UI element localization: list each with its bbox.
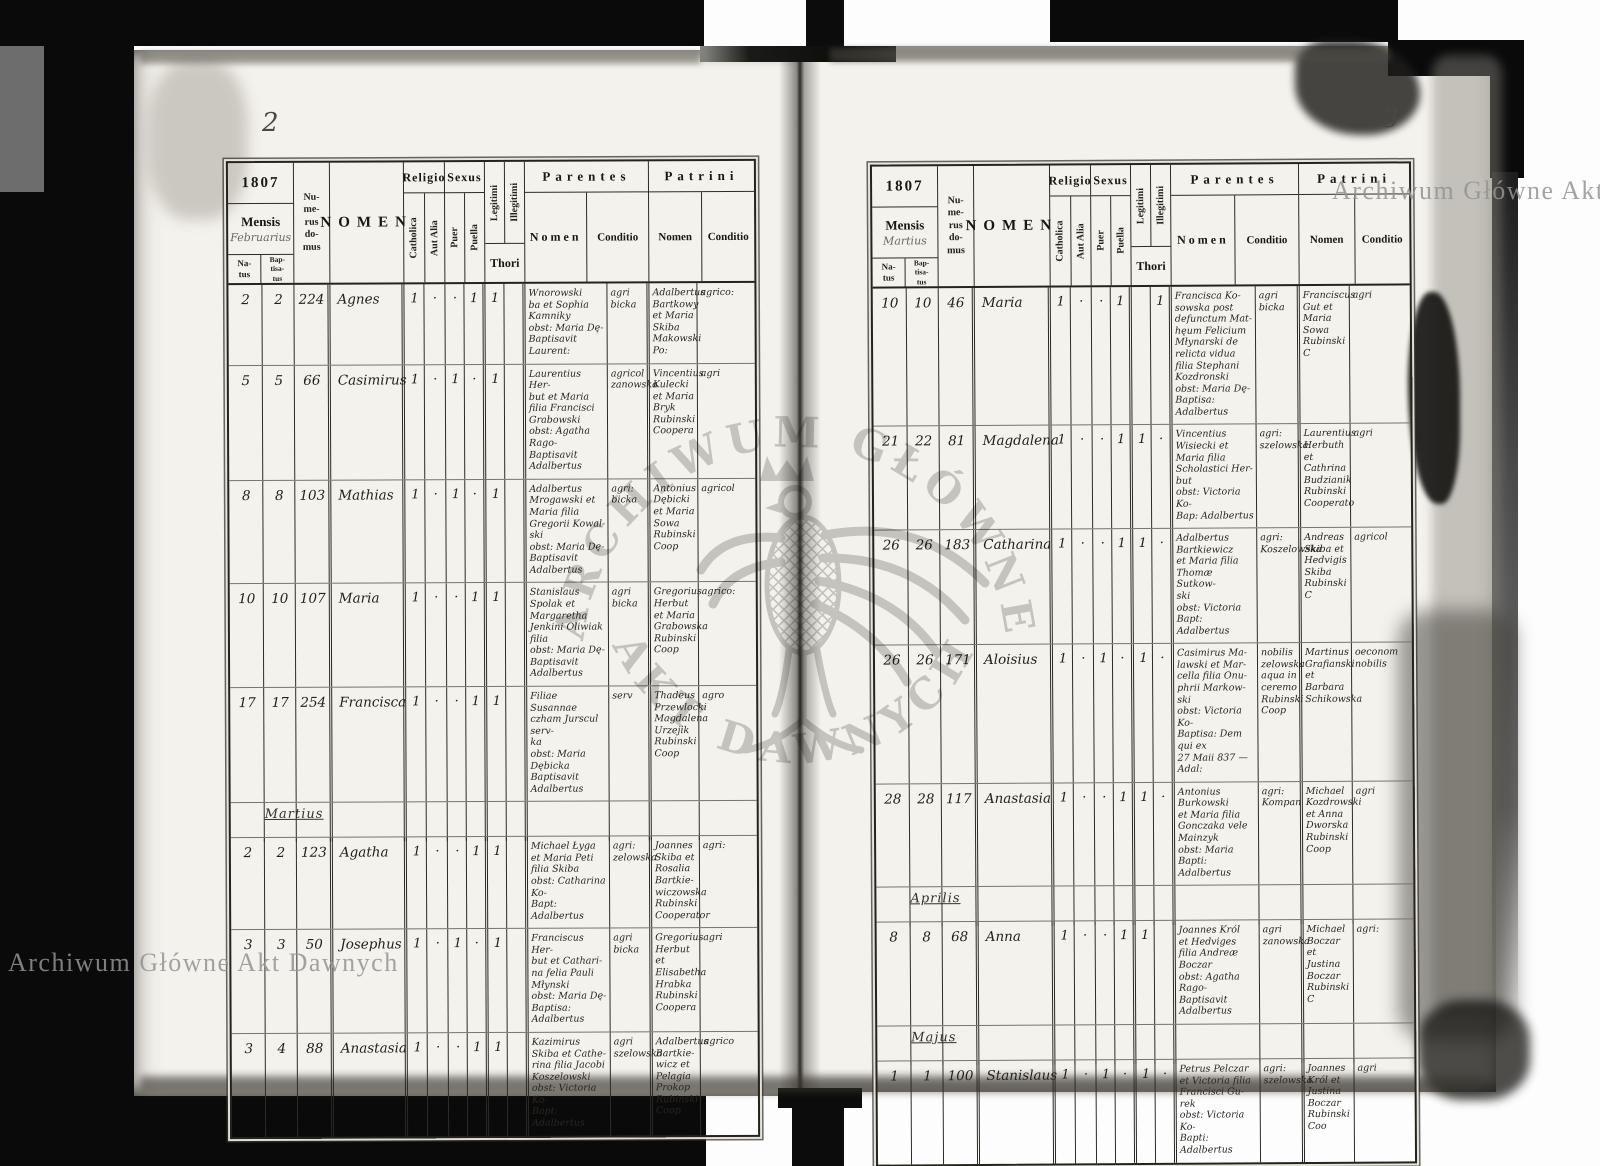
catholica-mark: 1 xyxy=(407,838,427,929)
page-number-left: 2 xyxy=(262,108,279,138)
aut-alia-mark: · xyxy=(428,1033,449,1136)
catholica-mark: 1 xyxy=(1055,922,1076,1025)
godparents-names: Andreas Skiba et Hedvigis Skiba Rubinski… xyxy=(1301,528,1352,643)
parents-names: Kazimirus Skiba et Cathe- rina filia Jac… xyxy=(529,1032,611,1135)
child-name: Magdalena xyxy=(976,426,1053,529)
register-row: 28 28 117 Anastasia 1 · · 1 1 · Antonius… xyxy=(876,780,1414,887)
house-number-value: 171 xyxy=(941,645,978,783)
puer-mark: · xyxy=(1095,783,1115,886)
year-label: 1807 xyxy=(872,166,937,207)
baptisatus-value: 26 xyxy=(908,530,941,644)
baptisatus-value: 22 xyxy=(908,427,941,530)
child-name: Aloisius xyxy=(977,645,1054,783)
puella-label: Puella xyxy=(1115,227,1126,254)
godparents-names: Michael Boczar et Justina Boczar Rubinsk… xyxy=(1304,920,1355,1023)
godparents-condition: agrico xyxy=(701,1032,758,1135)
header-date-block: 1807 Mensis Martius Na- tus Bap- tisa- t… xyxy=(872,166,939,287)
table-body-right: 10 10 46 Maria 1 · · 1 1 Francisca Ko- s… xyxy=(873,285,1415,1164)
table-body-left: 2 2 224 Agnes 1 · · 1 1 Wnorowski ba et … xyxy=(228,283,758,1137)
puer-mark: · xyxy=(1093,529,1113,643)
puer-label: Puer xyxy=(1095,231,1106,252)
legitimi-mark: 1 xyxy=(1136,921,1156,1024)
parentes-header: Parentes Nomen Conditio xyxy=(525,161,650,282)
natus-value: 10 xyxy=(230,584,264,687)
natus-value: 3 xyxy=(231,930,265,1033)
child-name: Catharina xyxy=(976,530,1053,645)
patrini-header: Patrini Nomen Conditio xyxy=(1299,163,1410,284)
legitimi-mark: 1 xyxy=(487,583,506,686)
catholica-mark: 1 xyxy=(406,584,426,687)
illegitimi-mark xyxy=(505,364,526,478)
godparents-names: Gregorius Herbut et Elisabetha Hrabka Ru… xyxy=(652,928,700,1031)
thori-label: Thori xyxy=(1136,258,1165,273)
page-number-right: 3 xyxy=(1382,104,1399,134)
year-label: 1807 xyxy=(228,163,293,204)
illegitimi-mark: · xyxy=(1152,529,1174,643)
parents-names: Petrus Pelczar et Victoria filia Francis… xyxy=(1176,1059,1261,1162)
aut-alia-mark: · xyxy=(1072,426,1094,529)
house-number-value: 183 xyxy=(940,530,977,644)
parents-condition: serv xyxy=(609,686,651,800)
godparents-names: Gregorius Herbut et Maria Grabowska Rubi… xyxy=(651,583,699,686)
natus-label: Na- tus xyxy=(873,258,906,286)
baptisatus-value: 1 xyxy=(911,1061,944,1164)
month-label: Martius xyxy=(265,807,324,822)
nomen-label: NOMEN xyxy=(966,217,1059,235)
register-row: 8 8 103 Mathias 1 · 1 · 1 Adalbertus Mro… xyxy=(229,478,755,584)
patrini-header: Patrini Nomen Conditio xyxy=(649,161,755,282)
puer-mark: · xyxy=(449,1033,468,1136)
thori-header: Legitimi Illegitimi Thori xyxy=(485,162,526,282)
parents-condition: agri zanowska xyxy=(1260,920,1305,1023)
parents-names: Wnorowski ba et Sophia Kamniky obst: Mar… xyxy=(525,284,607,364)
illegitimi-mark xyxy=(505,480,526,583)
parents-condition: agri bicka xyxy=(607,283,649,363)
godparents-condition: agri: xyxy=(1354,920,1415,1023)
house-number-value: 123 xyxy=(297,838,333,929)
aut-alia-mark: · xyxy=(426,687,447,801)
legitimi-mark: 1 xyxy=(1135,783,1155,886)
catholica-mark: 1 xyxy=(1051,288,1072,425)
register-table-right: 1807 Mensis Martius Na- tus Bap- tisa- t… xyxy=(870,161,1417,1166)
month-section-row: Aprilis xyxy=(876,884,1413,922)
parentes-label: Parentes xyxy=(1171,164,1298,196)
sexus-label: Sexus xyxy=(1091,165,1130,196)
aut-alia-label: Aut Alia xyxy=(1075,223,1086,259)
child-name: Anastasia xyxy=(334,1033,408,1136)
book-clasp-bottom xyxy=(792,1094,844,1166)
legitimi-mark: 1 xyxy=(1133,529,1153,643)
illegitimi-mark xyxy=(507,929,528,1032)
register-table-left: 1807 Mensis Februarius Na- tus Bap- tisa… xyxy=(226,159,760,1139)
natus-value: 21 xyxy=(874,427,909,530)
parents-condition: agri bicka xyxy=(1256,286,1301,424)
register-row: 3 4 88 Anastasia 1 · · 1 1 Kazimirus Ski… xyxy=(232,1031,758,1137)
natus-baptisatus-row: Na- tus Bap- tisa- tus xyxy=(228,255,293,283)
natus-value: 8 xyxy=(877,923,912,1026)
register-row: 10 10 107 Maria 1 · · 1 1 Stanislaus Spo… xyxy=(230,581,756,687)
puer-mark: · xyxy=(1092,287,1112,424)
register-row: 2 2 123 Agatha 1 · · 1 1 Michael Łyga et… xyxy=(231,835,757,929)
patrini-label: Patrini xyxy=(649,161,754,192)
godparents-condition: agri xyxy=(698,363,755,477)
child-name: Mathias xyxy=(331,480,405,583)
godparents-condition: agri xyxy=(1350,285,1411,423)
child-name: Anastasia xyxy=(978,783,1055,886)
child-name: Francisca xyxy=(332,687,406,802)
godparents-condition: agrico: xyxy=(699,582,756,685)
baptisatus-value: 3 xyxy=(265,930,297,1033)
catholica-mark: 1 xyxy=(1052,530,1073,644)
puella-mark: 1 xyxy=(1112,426,1134,529)
illegitimi-label: Illegitimi xyxy=(1155,186,1166,225)
illegitimi-mark xyxy=(506,583,527,686)
child-name: Casimirus xyxy=(331,365,405,480)
parents-names: Laurentius Her- but et Maria filia Franc… xyxy=(526,364,608,479)
house-number-value: 68 xyxy=(943,922,980,1025)
puer-label: Puer xyxy=(449,227,460,248)
legitimi-label: Legitimi xyxy=(489,184,500,220)
natus-label: Na- tus xyxy=(228,255,261,283)
child-name: Stanislaus xyxy=(979,1060,1056,1163)
aut-alia-mark: · xyxy=(426,584,447,687)
godparents-names: Franciscus Gut et Maria Sowa Rubinski C xyxy=(1300,286,1351,424)
numerus-domus-label: Nu- me- rus do- mus xyxy=(947,195,965,258)
baptisatus-value: 10 xyxy=(264,584,296,687)
puer-mark: · xyxy=(448,837,467,928)
sexus-header: Sexus Puer Puella xyxy=(1091,165,1132,285)
puella-mark: · xyxy=(465,365,486,479)
book-clasp-top xyxy=(806,0,844,52)
aut-alia-mark: · xyxy=(1074,783,1096,886)
month-section-row: Martius xyxy=(231,800,757,837)
religio-header: Religio Catholica Aut Alia xyxy=(404,162,446,282)
parentes-conditio-label: Conditio xyxy=(587,192,648,281)
catholica-mark: 1 xyxy=(408,1033,428,1136)
aut-alia-mark: · xyxy=(1075,1060,1097,1163)
parents-condition: agri: Koszelowska xyxy=(1257,528,1302,642)
godparents-condition: agri xyxy=(1351,424,1412,527)
baptisatus-value: 26 xyxy=(909,646,942,784)
baptisatus-value: 4 xyxy=(266,1034,298,1137)
puella-mark: 1 xyxy=(466,583,487,686)
aut-alia-mark: · xyxy=(427,929,448,1032)
godparents-condition: agri xyxy=(1353,781,1414,884)
parents-names: Adalbertus Bartkiewicz et Maria filia Th… xyxy=(1173,528,1258,643)
child-name: Josephus xyxy=(333,930,407,1033)
puella-mark: 1 xyxy=(1115,921,1137,1024)
mensis-label: Mensis xyxy=(241,214,280,230)
legitimi-mark: 1 xyxy=(1136,1060,1156,1163)
parents-condition: agri bicka xyxy=(610,929,652,1032)
thori-header: Legitimi Illegitimi Thori xyxy=(1131,165,1172,285)
house-number-value: 46 xyxy=(939,288,976,426)
illegitimi-mark xyxy=(508,1033,529,1136)
legitimi-mark: 1 xyxy=(489,1033,508,1136)
house-number-value: 117 xyxy=(942,784,979,887)
godparents-names: Thadeus Przewlocki Magdalena Urzejik Rub… xyxy=(651,686,699,800)
aut-alia-mark: · xyxy=(1073,645,1095,782)
illegitimi-mark: · xyxy=(1154,782,1176,885)
aut-alia-mark: · xyxy=(1072,529,1094,643)
child-name: Agnes xyxy=(330,285,404,365)
catholica-mark: 1 xyxy=(1054,783,1075,886)
puella-mark: · xyxy=(1115,1060,1137,1163)
puer-mark: · xyxy=(447,687,466,801)
mensis-label: Mensis xyxy=(885,217,924,233)
aut-alia-mark: · xyxy=(1071,287,1093,424)
natus-value: 26 xyxy=(875,646,910,784)
godparents-condition: agri xyxy=(700,928,757,1031)
house-number-value: 100 xyxy=(943,1061,980,1164)
illegitimi-label: Illegitimi xyxy=(509,183,520,222)
parents-condition: agri bicka xyxy=(609,583,651,686)
religio-label: Religio xyxy=(404,162,444,193)
parents-names: Michael Łyga et Maria Peti filia Skiba o… xyxy=(528,837,610,928)
baptisatus-value: 5 xyxy=(263,365,295,479)
parents-names: Filiae Susannae czham Jurscul serv- ka o… xyxy=(527,687,609,802)
illegitimi-mark xyxy=(506,687,527,801)
parents-names: Francisca Ko- sowska post defunctum Mat-… xyxy=(1172,286,1257,424)
aut-alia-mark: · xyxy=(427,837,448,928)
parents-names: Casimirus Ma- lawski et Mar- cella filia… xyxy=(1174,644,1259,782)
table-header-left: 1807 Mensis Februarius Na- tus Bap- tisa… xyxy=(228,161,755,285)
baptisatus-value: 2 xyxy=(265,838,297,929)
natus-value: 28 xyxy=(876,784,911,887)
parents-names: Franciscus Her- but et Cathari- na felia… xyxy=(528,929,610,1032)
sexus-label: Sexus xyxy=(445,162,484,193)
puer-mark: · xyxy=(1096,921,1116,1024)
godparents-condition: agrico: xyxy=(697,283,754,363)
baptisatus-value: 17 xyxy=(264,688,296,802)
table-header-right: 1807 Mensis Martius Na- tus Bap- tisa- t… xyxy=(872,163,1410,288)
register-row: 3 3 50 Josephus 1 · 1 · 1 Franciscus Her… xyxy=(231,927,757,1033)
puer-mark: 1 xyxy=(446,365,465,479)
legitimi-mark: 1 xyxy=(487,687,506,801)
child-name: Agatha xyxy=(333,838,407,929)
puella-label: Puella xyxy=(469,224,480,251)
patrini-conditio-label: Conditio xyxy=(1355,194,1410,283)
child-name: Maria xyxy=(975,288,1052,426)
house-number-value: 81 xyxy=(940,427,977,530)
natus-value: 1 xyxy=(877,1061,912,1164)
parentes-label: Parentes xyxy=(525,161,648,193)
child-name: Anna xyxy=(979,922,1056,1025)
godparents-condition: agro xyxy=(699,686,756,800)
nomen-header: NOMEN xyxy=(974,166,1051,287)
nomen-label: NOMEN xyxy=(320,214,413,231)
house-number-value: 50 xyxy=(297,930,333,1033)
godparents-names: Michael Kozdrowski et Anna Dworska Rubin… xyxy=(1303,781,1354,884)
register-row: 21 22 81 Magdalena 1 · · 1 1 · Vincentiu… xyxy=(874,423,1412,530)
aut-alia-label: Aut Alia xyxy=(429,220,440,256)
puer-mark: · xyxy=(445,284,464,364)
house-number-value: 88 xyxy=(298,1034,334,1137)
catholica-mark: 1 xyxy=(1053,645,1074,782)
legitimi-label: Legitimi xyxy=(1135,187,1146,223)
legitimi-mark: 1 xyxy=(1134,644,1154,781)
legitimi-mark xyxy=(1132,287,1152,424)
baptisatus-value: 8 xyxy=(911,923,944,1026)
patrini-nomen-label: Nomen xyxy=(1299,195,1355,284)
baptisatus-label: Bap- tisa- tus xyxy=(906,258,938,286)
child-name: Maria xyxy=(332,584,406,687)
godparents-names: Vincentius Kulecki et Maria Bryk Rubinsk… xyxy=(650,364,698,478)
natus-value: 17 xyxy=(230,688,264,802)
parents-names: Joannes Król et Hedviges filia Andreæ Bo… xyxy=(1176,921,1261,1024)
clasp-top-band xyxy=(700,46,896,62)
register-row: 26 26 171 Aloisius 1 · 1 · 1 · Casimirus… xyxy=(875,642,1413,784)
patrini-nomen-label: Nomen xyxy=(649,192,702,281)
scanned-register-photo: 2 3 1807 Mensis Februarius Na- tus Bap- … xyxy=(0,0,1600,1166)
month-label: Majus xyxy=(911,1030,956,1045)
natus-value: 10 xyxy=(873,289,908,427)
parents-names: Adalbertus Mrogawski et Maria filia Greg… xyxy=(526,479,608,582)
legitimi-mark: 1 xyxy=(488,929,507,1032)
puer-mark: · xyxy=(447,584,466,687)
illegitimi-mark: 1 xyxy=(1151,287,1173,424)
natus-value: 2 xyxy=(231,838,265,929)
house-number-value: 66 xyxy=(295,365,331,479)
illegitimi-mark: · xyxy=(1155,1060,1177,1163)
mensis-cell: Mensis Martius xyxy=(872,207,937,258)
puer-mark: 1 xyxy=(448,929,467,1032)
godparents-condition: agri: xyxy=(700,836,757,927)
catholica-mark: 1 xyxy=(407,930,427,1033)
natus-value: 2 xyxy=(228,285,262,365)
catholica-label: Catholica xyxy=(1055,220,1066,261)
legitimi-mark: 1 xyxy=(1133,425,1153,528)
parents-condition: agri szelowska xyxy=(611,1032,653,1135)
month-label: Aprilis xyxy=(910,891,960,906)
aut-alia-mark: · xyxy=(424,284,445,364)
aut-alia-mark: · xyxy=(425,480,446,583)
godparents-names: Joannes Król et Justina Boczar Rubinski … xyxy=(1304,1059,1355,1162)
parents-names: Stanislaus Spolak et Margaretha Jenkini … xyxy=(527,583,609,686)
baptisatus-label: Bap- tisa- tus xyxy=(261,255,293,283)
natus-baptisatus-row: Na- tus Bap- tisa- tus xyxy=(873,258,938,287)
catholica-mark: 1 xyxy=(405,365,425,479)
numerus-domus-label: Nu- me- rus do- mus xyxy=(303,192,321,255)
month-section-row: Majus xyxy=(877,1022,1414,1060)
puella-mark: 1 xyxy=(1112,529,1134,643)
puer-mark: 1 xyxy=(1096,1060,1116,1163)
godparents-names: Laurentius Herbuth et Cathrina Budzianik… xyxy=(1301,424,1352,527)
godparents-names: Adalbertus Bartkie- wicz et Pelagia Prok… xyxy=(653,1032,701,1135)
thori-label: Thori xyxy=(490,256,519,271)
parentes-header: Parentes Nomen Conditio xyxy=(1171,164,1300,285)
godparents-names: Adalbertus Bartkowy et Maria Skiba Makow… xyxy=(649,283,697,363)
register-row: 26 26 183 Catharina 1 · · 1 1 · Adalbert… xyxy=(874,526,1412,644)
cover-right-edge-top xyxy=(1490,44,1524,178)
baptisatus-value: 2 xyxy=(262,285,294,365)
puer-mark: · xyxy=(1093,426,1113,529)
catholica-mark: 1 xyxy=(404,284,424,364)
parents-condition: agri: zelowska xyxy=(610,837,652,928)
mensis-cell: Mensis Februarius xyxy=(228,204,293,255)
godparents-condition: agricol xyxy=(1351,527,1412,642)
register-row: 17 17 254 Francisca 1 · · 1 1 Filiae Sus… xyxy=(230,685,756,802)
parents-condition: nobilis zelowska aqua in ceremo Rubinski… xyxy=(1258,643,1303,781)
godparents-names: Antonius Dębicki et Maria Sowa Rubinski … xyxy=(650,479,698,582)
puella-mark: 1 xyxy=(464,284,485,364)
house-number-value: 107 xyxy=(296,584,332,687)
aut-alia-mark: · xyxy=(1075,922,1097,1025)
godparents-condition: oeconom nobilis xyxy=(1352,643,1413,781)
illegitimi-mark xyxy=(1155,921,1177,1024)
nomen-header: NOMEN xyxy=(330,162,405,282)
parents-condition: agri: szelowska xyxy=(1260,1059,1305,1162)
house-number-value: 224 xyxy=(294,285,330,365)
parents-condition: agricol zanowska xyxy=(608,364,650,478)
illegitimi-mark: · xyxy=(1153,644,1175,781)
register-row: 8 8 68 Anna 1 · · 1 1 Joannes Król et He… xyxy=(877,919,1415,1026)
puella-mark: 1 xyxy=(1111,287,1133,424)
puella-mark: 1 xyxy=(467,837,488,928)
parentes-nomen-label: Nomen xyxy=(525,193,587,282)
parents-condition: agri: szelowska xyxy=(1257,425,1302,528)
sexus-header: Sexus Puer Puella xyxy=(445,162,486,282)
register-row: 2 2 224 Agnes 1 · · 1 1 Wnorowski ba et … xyxy=(228,283,754,365)
baptisatus-value: 28 xyxy=(910,784,943,887)
legitimi-mark: 1 xyxy=(488,837,507,928)
patrini-conditio-label: Conditio xyxy=(702,192,754,281)
parents-condition: agri: Kompan xyxy=(1259,782,1304,885)
register-row: 1 1 100 Stanislaus 1 · 1 · 1 · Petrus Pe… xyxy=(877,1057,1415,1164)
illegitimi-mark xyxy=(507,837,528,928)
register-row: 10 10 46 Maria 1 · · 1 1 Francisca Ko- s… xyxy=(873,285,1411,426)
natus-value: 5 xyxy=(229,366,263,480)
catholica-mark: 1 xyxy=(1055,1060,1076,1163)
catholica-label: Catholica xyxy=(408,217,419,258)
baptisatus-value: 8 xyxy=(263,481,295,584)
puella-mark: · xyxy=(1113,644,1135,781)
parents-names: Vincentius Wisiecki et Maria filia Schol… xyxy=(1173,425,1258,528)
mensis-handwritten: Februarius xyxy=(230,231,291,244)
puella-mark: 1 xyxy=(1114,783,1136,886)
illegitimi-mark: · xyxy=(1152,425,1174,528)
puella-mark: 1 xyxy=(468,1033,489,1136)
parentes-conditio-label: Conditio xyxy=(1235,195,1299,285)
religio-header: Religio Catholica Aut Alia xyxy=(1050,165,1092,285)
parents-names: Antonius Burkowski et Maria filia Goncza… xyxy=(1175,782,1260,885)
catholica-mark: 1 xyxy=(405,480,425,583)
godparents-condition: agricol xyxy=(698,479,755,582)
natus-value: 3 xyxy=(232,1034,266,1137)
patrini-label: Patrini xyxy=(1299,163,1409,195)
godparents-condition: agri xyxy=(1354,1058,1415,1161)
natus-value: 8 xyxy=(229,481,263,584)
legitimi-mark: 1 xyxy=(485,284,504,364)
house-number-value: 103 xyxy=(295,481,331,584)
cover-top-left-bar xyxy=(0,0,704,46)
header-date-block: 1807 Mensis Februarius Na- tus Bap- tisa… xyxy=(228,163,295,283)
legitimi-mark: 1 xyxy=(486,480,505,583)
puella-mark: · xyxy=(465,480,486,583)
puer-mark: 1 xyxy=(1094,644,1114,781)
catholica-mark: 1 xyxy=(406,687,426,801)
puer-mark: 1 xyxy=(446,480,465,583)
parentes-nomen-label: Nomen xyxy=(1171,195,1236,285)
godparents-names: Martinus Grafianski et Barbara Schikowsk… xyxy=(1302,643,1353,781)
register-row: 5 5 66 Casimirus 1 · 1 · 1 Laurentius He… xyxy=(229,362,755,479)
religio-label: Religio xyxy=(1050,165,1090,196)
baptisatus-value: 10 xyxy=(907,288,940,426)
mensis-handwritten: Martius xyxy=(883,234,927,247)
puella-mark: · xyxy=(467,929,488,1032)
catholica-mark: 1 xyxy=(1052,426,1073,529)
godparents-names: Joannes Skiba et Rosalia Bartkie- wiczow… xyxy=(652,836,700,927)
